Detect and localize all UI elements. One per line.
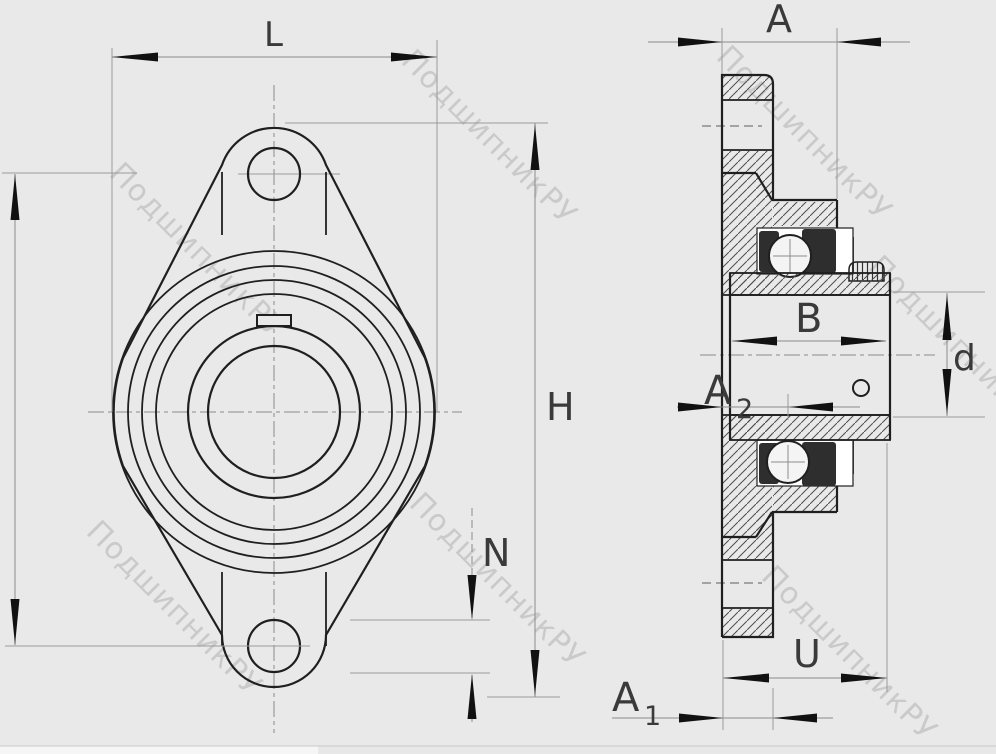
hatch-hub-bottom <box>773 486 836 511</box>
watermark-text: ПодшипникРУ <box>394 43 583 232</box>
boss-circle-outer <box>113 251 435 573</box>
bottom-strip <box>0 746 996 754</box>
bearing-drawing-page: ПодшипникРУ ПодшипникРУ ПодшипникРУ Подш… <box>0 0 996 754</box>
hatch-hub-top <box>773 202 836 226</box>
bearing-top-row <box>757 228 853 277</box>
dimension-B: B <box>732 296 886 346</box>
hatch-band <box>723 609 772 636</box>
bearing-bottom-row <box>757 440 853 486</box>
technical-drawing: ПодшипникРУ ПодшипникРУ ПодшипникРУ Подш… <box>0 0 996 754</box>
dim-label-A2-sub: 2 <box>736 394 753 425</box>
hatch-band <box>723 76 772 100</box>
dimension-N: N <box>350 508 510 722</box>
dim-label-B: B <box>795 296 822 342</box>
dim-label-A2: A <box>704 368 732 414</box>
set-screw-hole <box>853 380 869 396</box>
dim-label-A1: A <box>612 675 640 721</box>
dim-label-d: d <box>953 338 976 379</box>
watermark-text: ПодшипникРУ <box>402 486 591 675</box>
watermark-layer: ПодшипникРУ ПодшипникРУ ПодшипникРУ Подш… <box>79 39 996 748</box>
watermark-text: ПодшипникРУ <box>754 559 943 748</box>
dim-label-N: N <box>482 531 510 575</box>
dim-label-H: H <box>546 385 575 429</box>
dim-label-U: U <box>793 632 821 676</box>
front-view: L H N <box>2 15 575 733</box>
insert-notch <box>257 315 291 326</box>
dim-label-A: A <box>766 0 792 41</box>
dim-label-L: L <box>264 15 283 55</box>
dim-label-A1-sub: 1 <box>644 701 661 732</box>
